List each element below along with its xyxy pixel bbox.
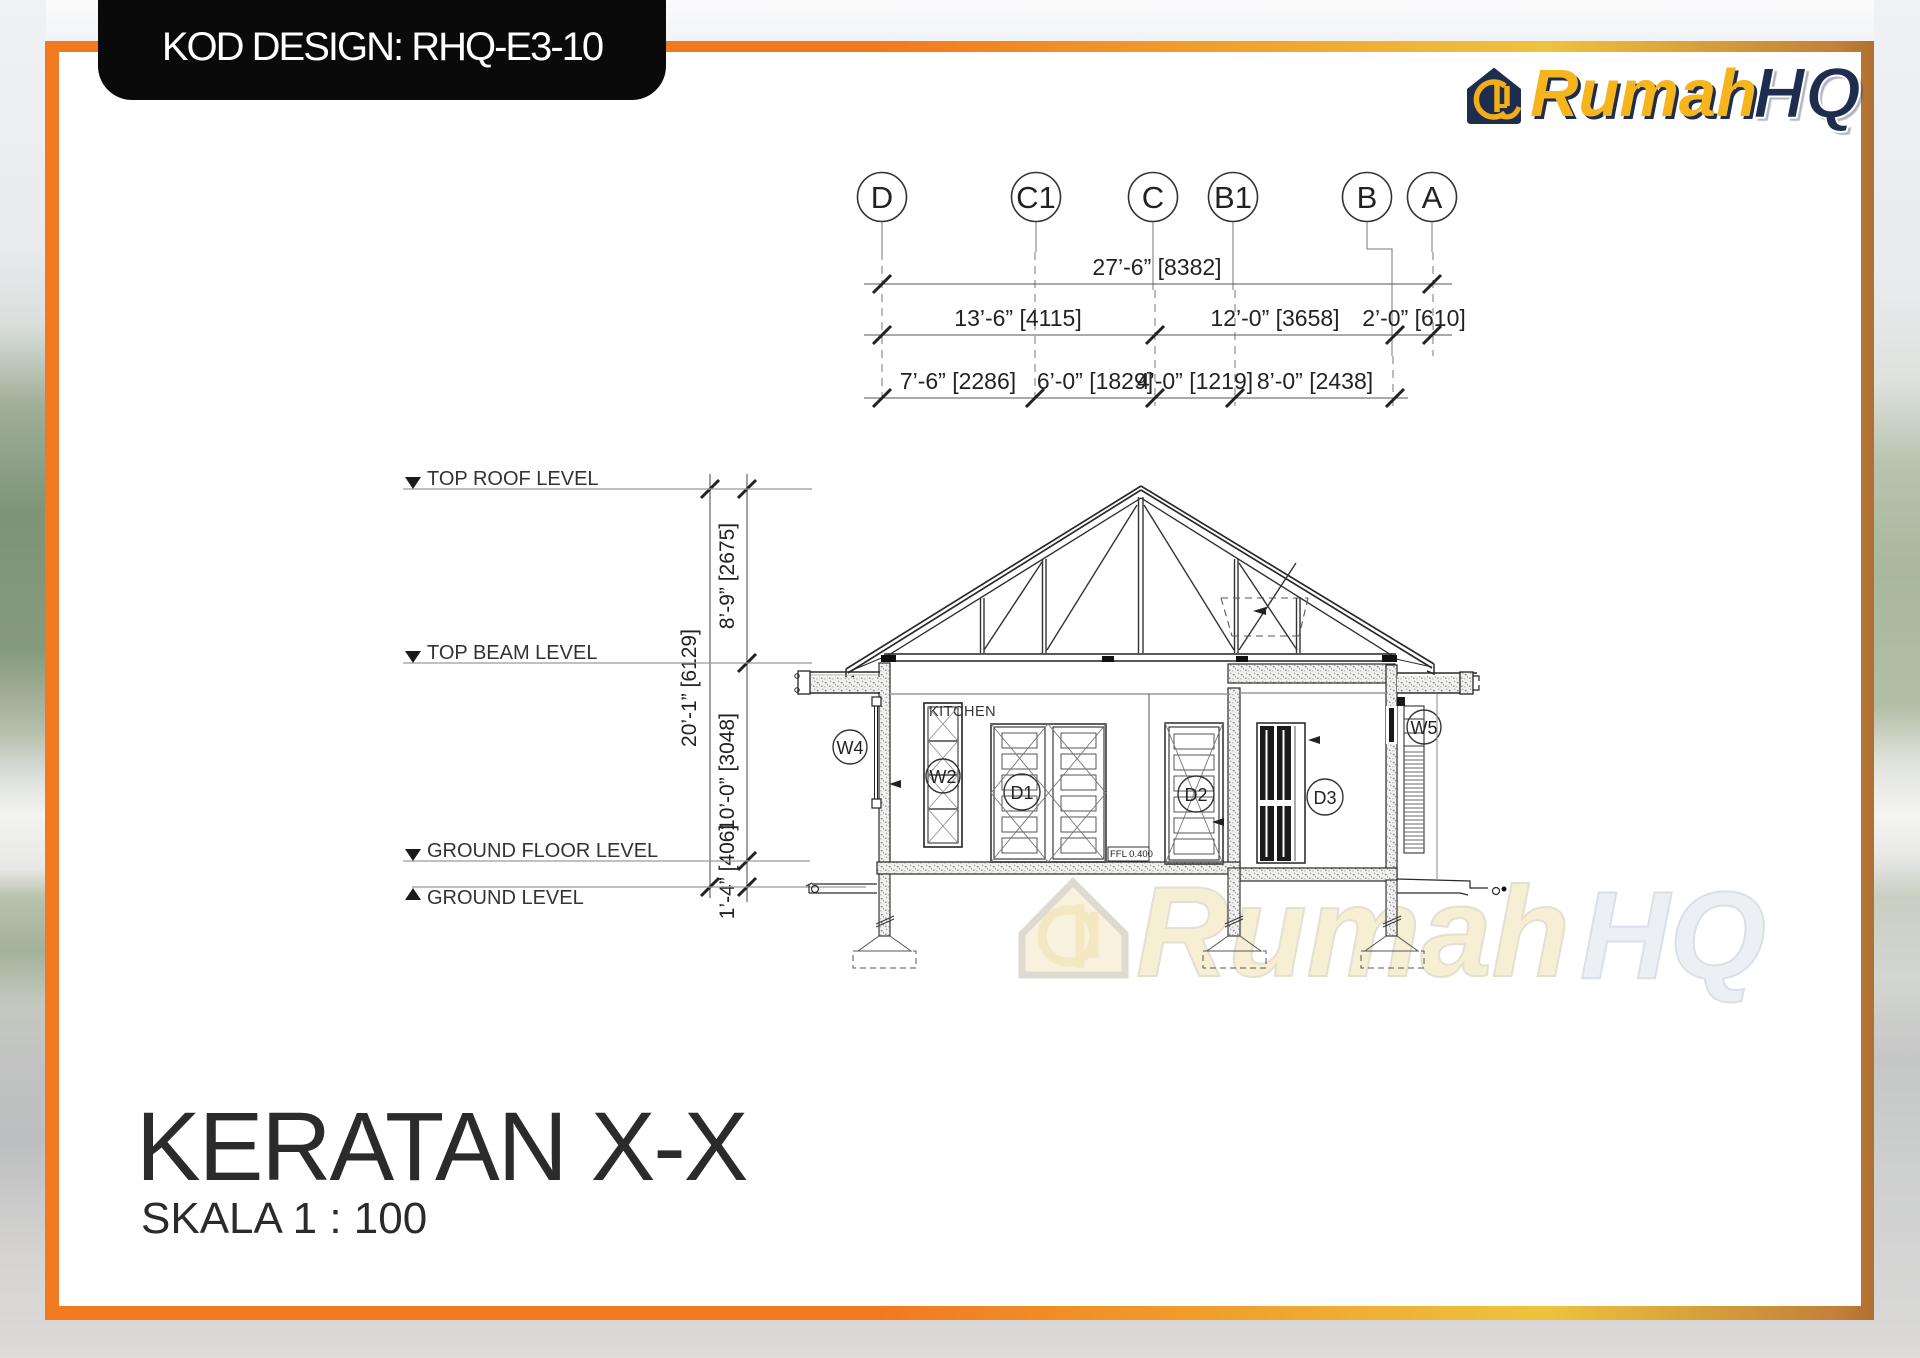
svg-text:FFL 0.400: FFL 0.400 xyxy=(1110,849,1153,860)
svg-text:7’-6” [2286]: 7’-6” [2286] xyxy=(900,368,1016,394)
svg-text:A: A xyxy=(1422,180,1443,215)
svg-text:Rumah: Rumah xyxy=(1136,861,1570,1004)
svg-text:TOP BEAM LEVEL: TOP BEAM LEVEL xyxy=(427,642,597,664)
svg-text:W5: W5 xyxy=(1411,718,1438,738)
svg-text:C1: C1 xyxy=(1016,180,1056,215)
svg-text:12’-0” [3658]: 12’-0” [3658] xyxy=(1210,305,1339,331)
svg-text:C: C xyxy=(1142,180,1164,215)
svg-text:GROUND LEVEL: GROUND LEVEL xyxy=(427,887,584,909)
svg-text:B: B xyxy=(1357,180,1378,215)
svg-text:4’-0” [1219]: 4’-0” [1219] xyxy=(1137,368,1253,394)
svg-text:1’-4” [406]: 1’-4” [406] xyxy=(716,825,739,920)
svg-text:27’-6” [8382]: 27’-6” [8382] xyxy=(1092,254,1221,280)
svg-text:D: D xyxy=(871,180,893,215)
svg-text:10’-0” [3048]: 10’-0” [3048] xyxy=(716,713,739,831)
svg-text:2’-0” [610]: 2’-0” [610] xyxy=(1362,305,1466,331)
svg-text:HQ: HQ xyxy=(1580,867,1766,1005)
svg-text:D2: D2 xyxy=(1184,785,1207,805)
svg-text:13’-6” [4115]: 13’-6” [4115] xyxy=(954,305,1081,331)
svg-text:8’-9” [2675]: 8’-9” [2675] xyxy=(716,523,739,629)
svg-text:W2: W2 xyxy=(930,767,957,787)
svg-text:6’-0” [1829]: 6’-0” [1829] xyxy=(1037,368,1153,394)
svg-text:D1: D1 xyxy=(1010,783,1033,803)
svg-text:B1: B1 xyxy=(1214,180,1252,215)
svg-text:20’-1” [6129]: 20’-1” [6129] xyxy=(678,629,701,747)
svg-text:8’-0” [2438]: 8’-0” [2438] xyxy=(1257,368,1373,394)
svg-text:GROUND FLOOR LEVEL: GROUND FLOOR LEVEL xyxy=(427,840,658,862)
svg-text:W4: W4 xyxy=(837,738,864,758)
svg-text:D3: D3 xyxy=(1313,788,1336,808)
svg-text:TOP ROOF LEVEL: TOP ROOF LEVEL xyxy=(427,468,599,490)
